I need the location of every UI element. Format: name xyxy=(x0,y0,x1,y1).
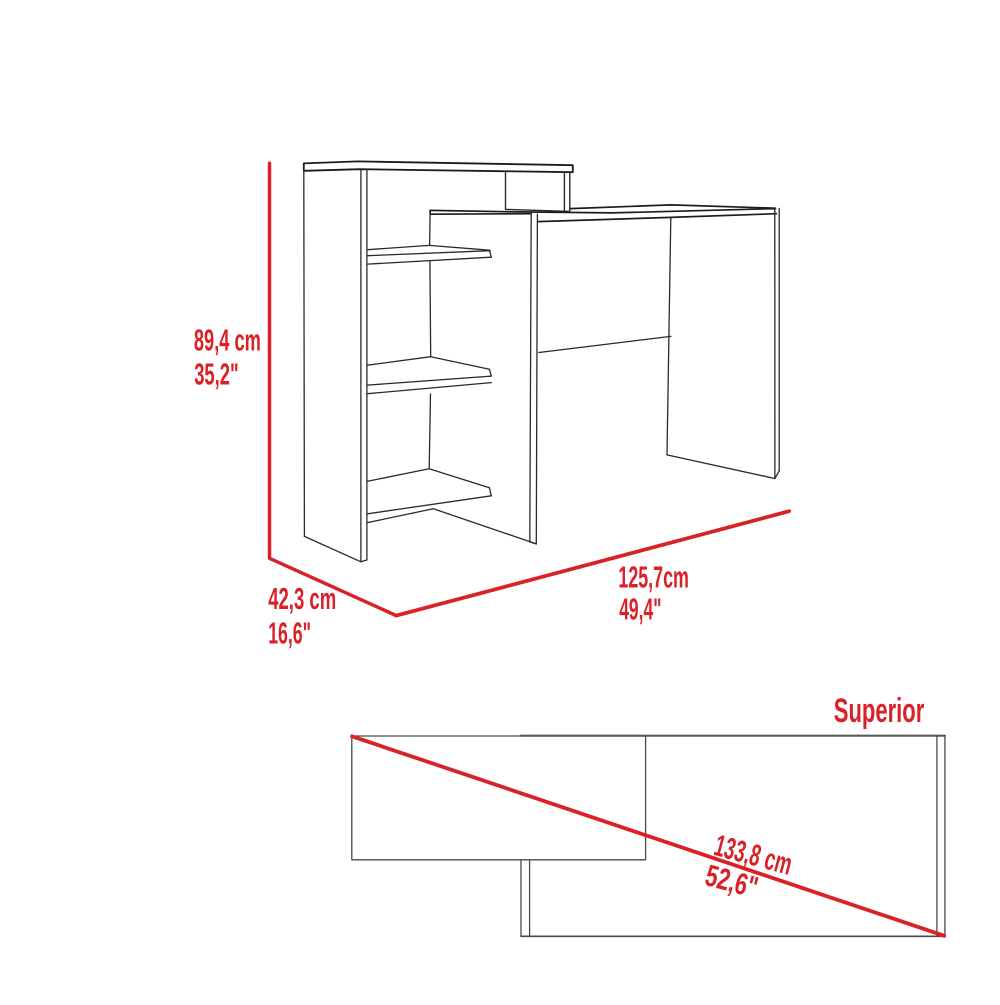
svg-text:16,6": 16,6" xyxy=(268,616,311,650)
svg-text:Superior: Superior xyxy=(834,692,925,730)
svg-text:42,3 cm: 42,3 cm xyxy=(268,582,336,616)
svg-text:49,4": 49,4" xyxy=(619,593,661,627)
svg-text:125,7cm: 125,7cm xyxy=(618,560,689,594)
svg-text:89,4 cm: 89,4 cm xyxy=(194,323,261,357)
svg-text:35,2": 35,2" xyxy=(194,357,239,391)
